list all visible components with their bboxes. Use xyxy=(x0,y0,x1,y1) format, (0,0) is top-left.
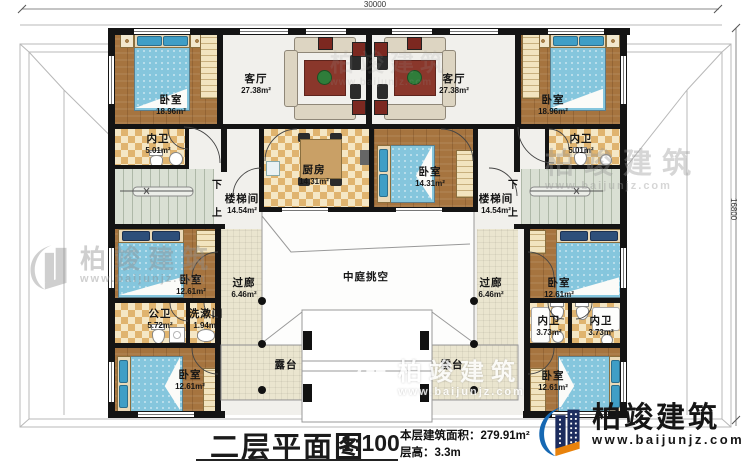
column-dot xyxy=(258,340,266,348)
room-label-bath-top-left: 内卫5.01m² xyxy=(133,133,183,155)
plan-area-info: 本层建筑面积：279.91m² 层高：3.3m xyxy=(400,428,530,461)
room-label-bedroom-mid-left: 卧室12.61m² xyxy=(160,274,222,296)
stair-up-label: 上 xyxy=(212,204,222,219)
floor-plan-page: 卧室18.96m² 内卫5.01m² 客厅27.38m² 客厅27.38m² 卧… xyxy=(0,0,750,473)
room-label-bath-mid-right-2: 内卫3.73m² xyxy=(576,315,626,337)
room-label-washroom: 洗漱间1.94m² xyxy=(178,308,234,330)
room-label-bedroom-mid-right: 卧室12.61m² xyxy=(528,277,590,299)
plan-scale: 1:100 xyxy=(341,430,400,457)
column-dot xyxy=(470,340,478,348)
dimension-right: 16800 xyxy=(729,198,738,220)
room-label-living-left: 客厅27.38m² xyxy=(226,73,286,95)
room-label-kitchen: 厨房14.31m² xyxy=(284,164,344,186)
stair-down-label: 下 xyxy=(508,176,518,191)
room-label-terrace-left: 露台 xyxy=(261,359,311,372)
room-label-bedroom-bottom-left: 卧室12.61m² xyxy=(159,369,221,391)
room-label-bedroom-center: 卧室14.31m² xyxy=(400,166,460,188)
room-label-bath-mid-right-1: 内卫3.73m² xyxy=(524,315,574,337)
title-underline xyxy=(196,459,398,461)
room-label-bath-top-right: 内卫5.01m² xyxy=(556,133,606,155)
room-label-bedroom-bottom-right: 卧室12.61m² xyxy=(522,370,584,392)
room-label-corridor-left: 过廊6.46m² xyxy=(219,277,269,299)
room-label-atrium: 中庭挑空 xyxy=(326,271,406,284)
room-label-living-right: 客厅27.38m² xyxy=(424,73,484,95)
stair-up-label: 上 xyxy=(508,204,518,219)
floor-area-line: 本层建筑面积：279.91m² xyxy=(400,428,530,445)
room-label-bedroom-top-left: 卧室18.96m² xyxy=(140,94,202,116)
column-dot xyxy=(470,386,478,394)
porch xyxy=(302,310,432,422)
brand-website: www.baijunjz.com xyxy=(592,433,744,447)
dimension-top: 30000 xyxy=(345,0,405,9)
room-label-bedroom-top-right: 卧室18.96m² xyxy=(522,94,584,116)
stair-rails xyxy=(120,187,603,196)
brand-logo-block: 柏竣建筑 www.baijunjz.com xyxy=(532,404,744,458)
column-dot xyxy=(258,386,266,394)
stair-down-label: 下 xyxy=(212,176,222,191)
brand-name: 柏竣建筑 xyxy=(592,404,744,433)
floor-height-line: 层高：3.3m xyxy=(400,445,530,462)
room-label-terrace-right: 露台 xyxy=(427,359,477,372)
brand-logo-icon xyxy=(532,404,588,458)
room-label-corridor-right: 过廊6.46m² xyxy=(466,277,516,299)
